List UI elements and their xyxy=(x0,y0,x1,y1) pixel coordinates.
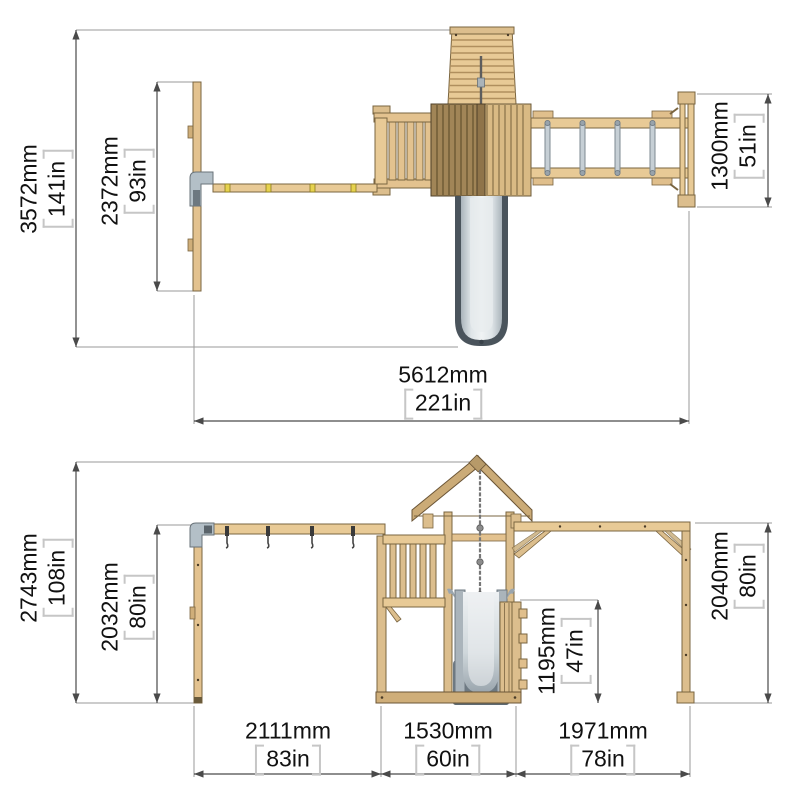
dim-mm: 1530mm xyxy=(403,719,492,745)
bracket-right xyxy=(42,539,73,548)
dim-mm: 1300mm xyxy=(708,101,734,190)
climbing-ramp-plan xyxy=(446,27,518,104)
bracket-left xyxy=(42,219,73,228)
bracket-left xyxy=(123,205,154,214)
swing-beam-front xyxy=(202,524,385,534)
dim-in: 47in xyxy=(563,629,589,672)
swing-frame-plan xyxy=(188,82,377,291)
monkeybar-beam-front xyxy=(514,522,690,531)
dim-in: 78in xyxy=(581,747,624,773)
dim-mm: 1971mm xyxy=(558,719,647,745)
dim-tower-section-width: 1530mm 60in xyxy=(403,719,492,776)
bracket-right xyxy=(472,744,481,775)
dim-swing-frame-depth: 2372mm 93in xyxy=(98,136,155,225)
bracket-right xyxy=(123,148,154,157)
dim-in: 108in xyxy=(45,550,71,606)
dim-mm: 1195mm xyxy=(535,607,561,695)
monkeybar-end-frame-plan xyxy=(670,92,695,207)
bracket-right xyxy=(473,388,482,419)
bracket-right xyxy=(733,543,764,552)
ramp-top-rail xyxy=(450,27,514,34)
bracket-right xyxy=(312,744,321,775)
playset-dimension-diagram: 3572mm 141in 2372mm 93in 1300mm 51in 561… xyxy=(0,0,800,800)
dim-in: 83in xyxy=(266,747,309,773)
dim-total-height: 2743mm 108in xyxy=(17,533,74,622)
platform-railing xyxy=(383,535,445,607)
dim-monkeybar-section-width: 1971mm 78in xyxy=(558,719,647,776)
bracket-left xyxy=(570,744,579,775)
dim-total-width: 5612mm 221in xyxy=(398,363,487,420)
dim-in: 141in xyxy=(45,161,71,217)
dim-in: 60in xyxy=(426,747,469,773)
bridge-plan xyxy=(373,106,433,195)
bracket-left xyxy=(42,608,73,617)
tower-front xyxy=(376,455,532,705)
bracket-right xyxy=(733,113,764,122)
dim-mm: 3572mm xyxy=(17,144,43,233)
dim-mm: 2032mm xyxy=(98,562,124,651)
dim-monkeybar-depth: 1300mm 51in xyxy=(708,101,765,190)
dim-total-depth: 3572mm 141in xyxy=(17,144,74,233)
dim-mm: 2111mm xyxy=(245,719,331,745)
bracket-left xyxy=(560,675,591,684)
swing-frame-front xyxy=(190,523,385,703)
bracket-left xyxy=(255,744,264,775)
dim-monkeybar-height: 2040mm 80in xyxy=(708,531,765,620)
monkeybar-post-front xyxy=(682,531,690,692)
bracket-left xyxy=(733,600,764,609)
bracket-right xyxy=(560,618,591,627)
dim-mm: 2372mm xyxy=(98,136,124,225)
climbing-wall-front xyxy=(500,602,527,703)
dim-mm: 2743mm xyxy=(17,533,43,622)
dim-platform-height: 1195mm 47in xyxy=(535,607,592,695)
dim-swing-section-width: 2111mm 83in xyxy=(245,719,331,776)
dim-in: 221in xyxy=(415,391,471,417)
dim-in: 80in xyxy=(736,554,762,597)
bracket-right xyxy=(627,744,636,775)
roof-ridge xyxy=(477,104,485,196)
post-foot xyxy=(677,692,694,703)
dim-mm: 2040mm xyxy=(708,531,734,620)
tower-roof-plan xyxy=(431,104,531,201)
dim-in: 80in xyxy=(126,585,152,628)
bracket-left xyxy=(733,170,764,179)
slide-plan xyxy=(455,196,508,346)
dim-in: 93in xyxy=(126,159,152,202)
tower-base-beam xyxy=(376,692,521,703)
monkey-bars-plan xyxy=(531,111,690,185)
tower-gable-roof xyxy=(412,455,532,528)
dim-mm: 5612mm xyxy=(398,363,487,389)
bracket-left xyxy=(415,744,424,775)
bracket-right xyxy=(42,150,73,159)
bracket-left xyxy=(123,631,154,640)
dim-in: 51in xyxy=(736,124,762,167)
bracket-left xyxy=(404,388,413,419)
bracket-right xyxy=(123,574,154,583)
dim-swing-beam-height: 2032mm 80in xyxy=(98,562,155,651)
monkey-bar-rungs xyxy=(545,120,655,175)
